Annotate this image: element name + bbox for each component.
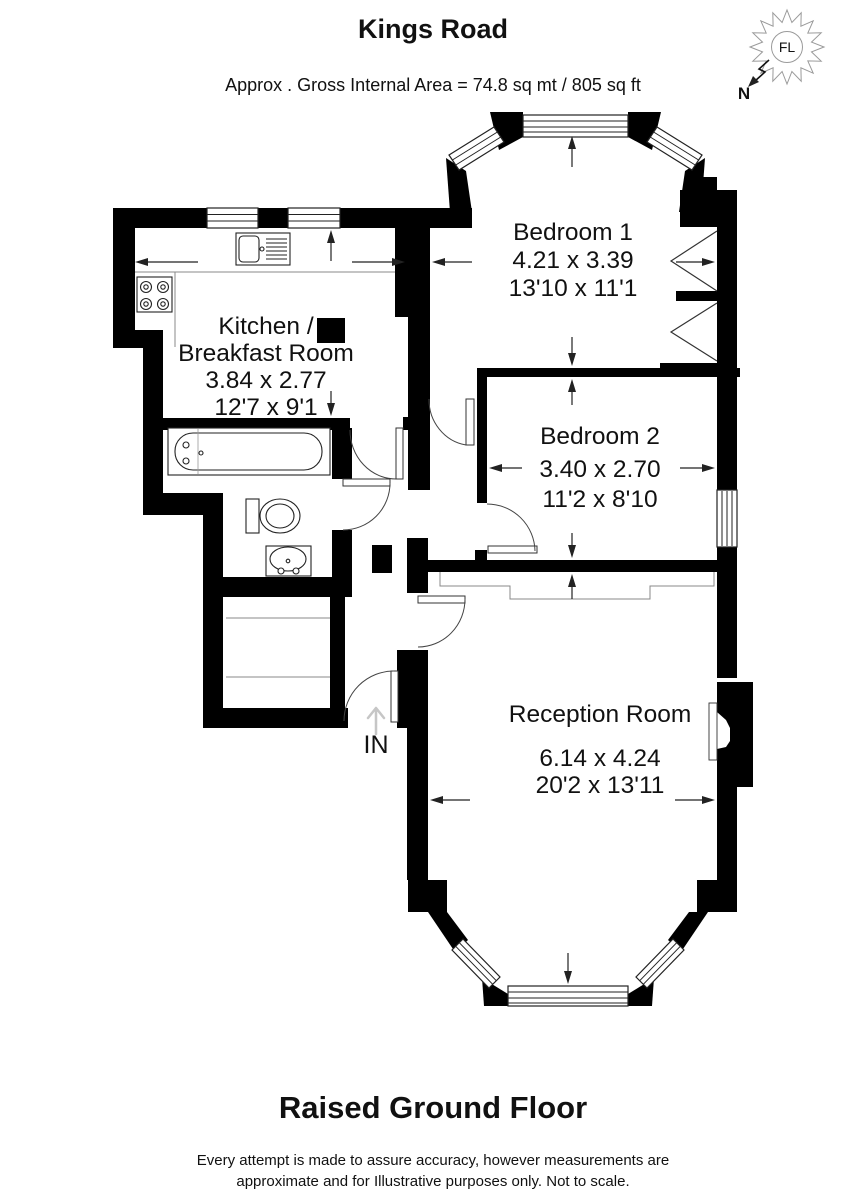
bathroom-door bbox=[343, 479, 390, 530]
wall bbox=[717, 227, 737, 490]
bathtub bbox=[168, 428, 330, 475]
walls-layer bbox=[113, 112, 753, 1006]
bedroom2-metric: 3.40 x 2.70 bbox=[539, 456, 660, 483]
bedroom2-imperial: 11'2 x 8'10 bbox=[542, 486, 657, 513]
wall bbox=[717, 783, 737, 880]
wall bbox=[425, 560, 717, 572]
closet-shelves bbox=[226, 618, 330, 677]
kitchen-door bbox=[350, 428, 403, 479]
bedroom2-name: Bedroom 2 bbox=[540, 423, 660, 450]
floor-plan: Kings Road Approx . Gross Internal Area … bbox=[0, 0, 867, 1200]
kitchen-metric: 3.84 x 2.77 bbox=[205, 367, 326, 394]
wall bbox=[203, 577, 352, 597]
wall bbox=[475, 550, 487, 560]
wall bbox=[717, 547, 737, 678]
wall bbox=[203, 493, 223, 728]
reception-metric: 6.14 x 4.24 bbox=[539, 745, 660, 772]
wall bbox=[143, 330, 163, 493]
kitchen-name-line2: Breakfast Room bbox=[178, 340, 354, 367]
compass: FL N bbox=[738, 10, 824, 103]
wall bbox=[372, 545, 392, 573]
disclaimer-line1: Every attempt is made to assure accuracy… bbox=[197, 1152, 669, 1169]
bedroom2-door bbox=[487, 504, 537, 553]
wall bbox=[258, 208, 288, 228]
wall bbox=[408, 880, 447, 912]
wall bbox=[407, 728, 428, 880]
kitchen-imperial: 12'7 x 9'1 bbox=[214, 394, 317, 421]
fireplace-hearth bbox=[709, 703, 717, 760]
wall bbox=[332, 428, 352, 479]
bay-window-angled bbox=[452, 939, 500, 988]
window bbox=[207, 208, 258, 228]
footer: Raised Ground Floor Every attempt is mad… bbox=[197, 1090, 669, 1190]
kitchen-name-line1: Kitchen / bbox=[218, 313, 314, 340]
floorplan-page: Kings Road Approx . Gross Internal Area … bbox=[0, 0, 867, 1200]
wall bbox=[113, 330, 143, 348]
bay-window-angled bbox=[636, 939, 684, 988]
reception-name: Reception Room bbox=[509, 701, 691, 728]
reception-alcove-line bbox=[440, 572, 714, 599]
wall bbox=[676, 291, 717, 301]
wall bbox=[113, 208, 135, 348]
header: Kings Road Approx . Gross Internal Area … bbox=[225, 14, 641, 95]
compass-fl-label: FL bbox=[779, 39, 796, 55]
wall bbox=[697, 880, 737, 912]
wall bbox=[397, 650, 428, 728]
north-label: N bbox=[738, 84, 750, 103]
basin bbox=[266, 546, 311, 576]
floor-name-label: Raised Ground Floor bbox=[279, 1090, 587, 1125]
wall bbox=[477, 377, 487, 503]
wall bbox=[395, 227, 430, 317]
reception-door bbox=[418, 596, 465, 647]
entrance-label: IN bbox=[364, 731, 389, 759]
kitchen-sink bbox=[236, 233, 290, 265]
bedroom1-imperial: 13'10 x 11'1 bbox=[509, 275, 638, 302]
bedroom1-metric: 4.21 x 3.39 bbox=[512, 247, 633, 274]
corridor-door bbox=[429, 399, 474, 445]
bay-window bbox=[523, 115, 628, 137]
window bbox=[288, 208, 340, 228]
closet-door-icon bbox=[671, 303, 717, 361]
wall bbox=[330, 597, 345, 708]
bedroom1-name: Bedroom 1 bbox=[513, 219, 633, 246]
plan-title: Kings Road bbox=[358, 14, 508, 44]
toilet bbox=[246, 499, 300, 533]
reception-imperial: 20'2 x 13'11 bbox=[536, 772, 665, 799]
plan-area-subtitle: Approx . Gross Internal Area = 74.8 sq m… bbox=[225, 75, 641, 95]
wall bbox=[332, 530, 352, 597]
wall bbox=[203, 708, 348, 728]
wall bbox=[407, 538, 428, 593]
entrance: IN bbox=[364, 708, 389, 759]
hob bbox=[137, 277, 172, 312]
wall bbox=[408, 317, 430, 490]
disclaimer-line2: approximate and for Illustrative purpose… bbox=[236, 1173, 629, 1190]
